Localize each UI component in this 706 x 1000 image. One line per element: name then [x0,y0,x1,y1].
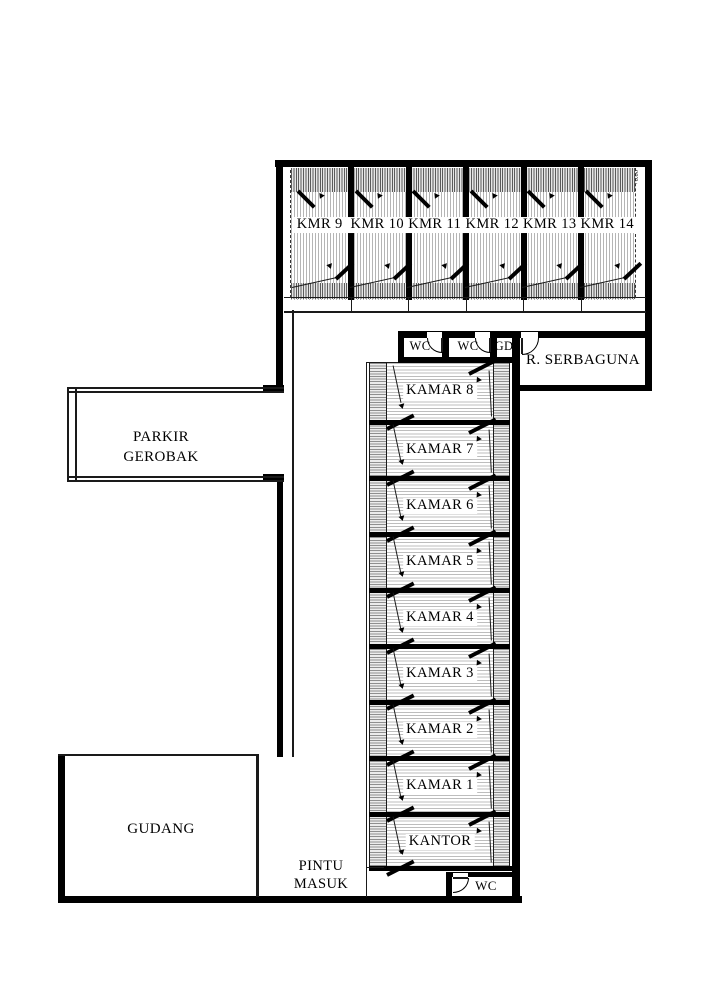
plan-line [67,387,284,389]
room-label-kmr: KMR 11 [405,217,464,233]
plan-line [408,297,409,312]
plan-line [369,363,370,866]
wall [521,167,527,300]
room-label-kamar: KAMAR 8 [403,383,477,399]
room-label-kmr: KMR 14 [577,217,637,233]
room-label-kmr: KMR 13 [520,217,580,233]
wall [406,167,412,300]
column-porch-hatch-right [493,363,510,866]
wall [513,385,652,391]
wall [276,160,283,389]
wall [578,167,584,300]
room-label-kamar: KAMAR 1 [403,778,477,794]
column-porch-hatch-left [369,363,386,866]
wall [275,160,652,167]
room-label-kamar: KAMAR 6 [403,498,477,514]
wall [58,754,65,898]
area-label-parkir-line1: PARKIR [130,429,192,446]
room-label-kamar: KAMAR 5 [403,554,477,570]
plan-line [493,363,494,866]
plan-line [466,297,467,312]
plan-line [284,311,646,313]
door-leaf [521,338,523,354]
door-leaf [453,877,468,879]
plan-line [284,297,646,298]
room-label-kmr: KMR 9 [294,217,346,233]
plan-line [366,362,367,897]
hatch-edge-dashed [635,168,636,298]
door-leaf [489,338,491,352]
room-label-kamar: KANTOR [406,834,475,850]
plan-line [351,297,352,312]
plan-line [523,297,524,312]
room-label-kamar: KAMAR 2 [403,722,477,738]
plan-line [75,387,77,481]
plan-line [509,363,510,866]
plan-line [581,297,582,312]
plan-line [67,391,284,393]
area-label-pintu-line2: MASUK [291,877,351,893]
room-label-kmr: KMR 12 [462,217,522,233]
wall [645,160,652,391]
door-opening [427,332,442,338]
door-leaf [441,338,443,352]
wall [446,872,452,898]
plan-line [58,754,259,756]
room-label-gudang: GUDANG [124,821,197,838]
wall [463,167,469,300]
plan-line [67,387,69,481]
area-label-pintu-line1: PINTU [296,859,347,875]
wall [512,331,520,903]
plan-line [386,363,387,866]
wall [58,896,522,903]
room-label-kamar: KAMAR 4 [403,610,477,626]
wall [277,476,283,757]
room-label-kmr: KMR 10 [347,217,407,233]
plan-line [292,310,294,757]
room-label-kamar: KAMAR 3 [403,666,477,682]
floor-plan: R. SERBAGUNA PARKIR GEROBAK GUDANG PINTU… [0,0,706,1000]
door-arc-wc-bottom [453,878,469,893]
plan-line [67,480,284,482]
area-label-parkir-line2: GEROBAK [120,449,201,466]
room-label-wc-bottom: WC [472,879,500,893]
door-opening [475,332,490,338]
plan-line [366,867,384,868]
plan-line [256,754,259,897]
hatch-edge-dashed [290,170,291,298]
plan-line [366,362,398,363]
room-label-kamar: KAMAR 7 [403,442,477,458]
wall [348,167,354,300]
plan-line [67,476,284,478]
door-opening [521,332,538,338]
room-label-serbaguna: R. SERBAGUNA [523,352,643,369]
